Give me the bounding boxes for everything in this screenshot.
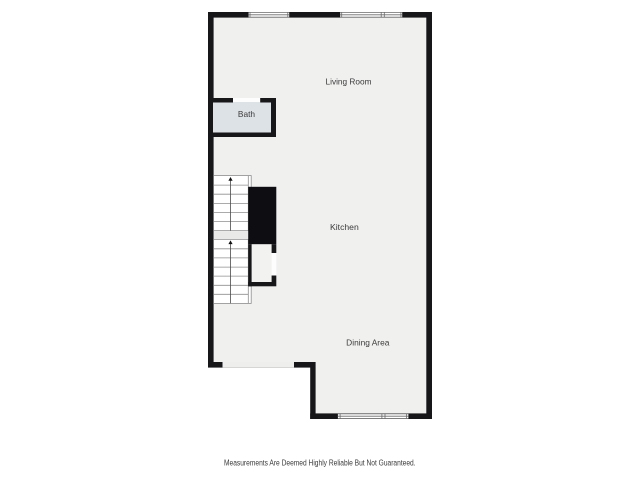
svg-text:Kitchen: Kitchen (330, 222, 359, 232)
svg-text:Bath: Bath (238, 109, 256, 119)
svg-text:Living Room: Living Room (326, 77, 372, 87)
svg-text:Measurements Are Deemed Highly: Measurements Are Deemed Highly Reliable … (224, 458, 416, 467)
svg-text:Dining Area: Dining Area (346, 338, 390, 348)
